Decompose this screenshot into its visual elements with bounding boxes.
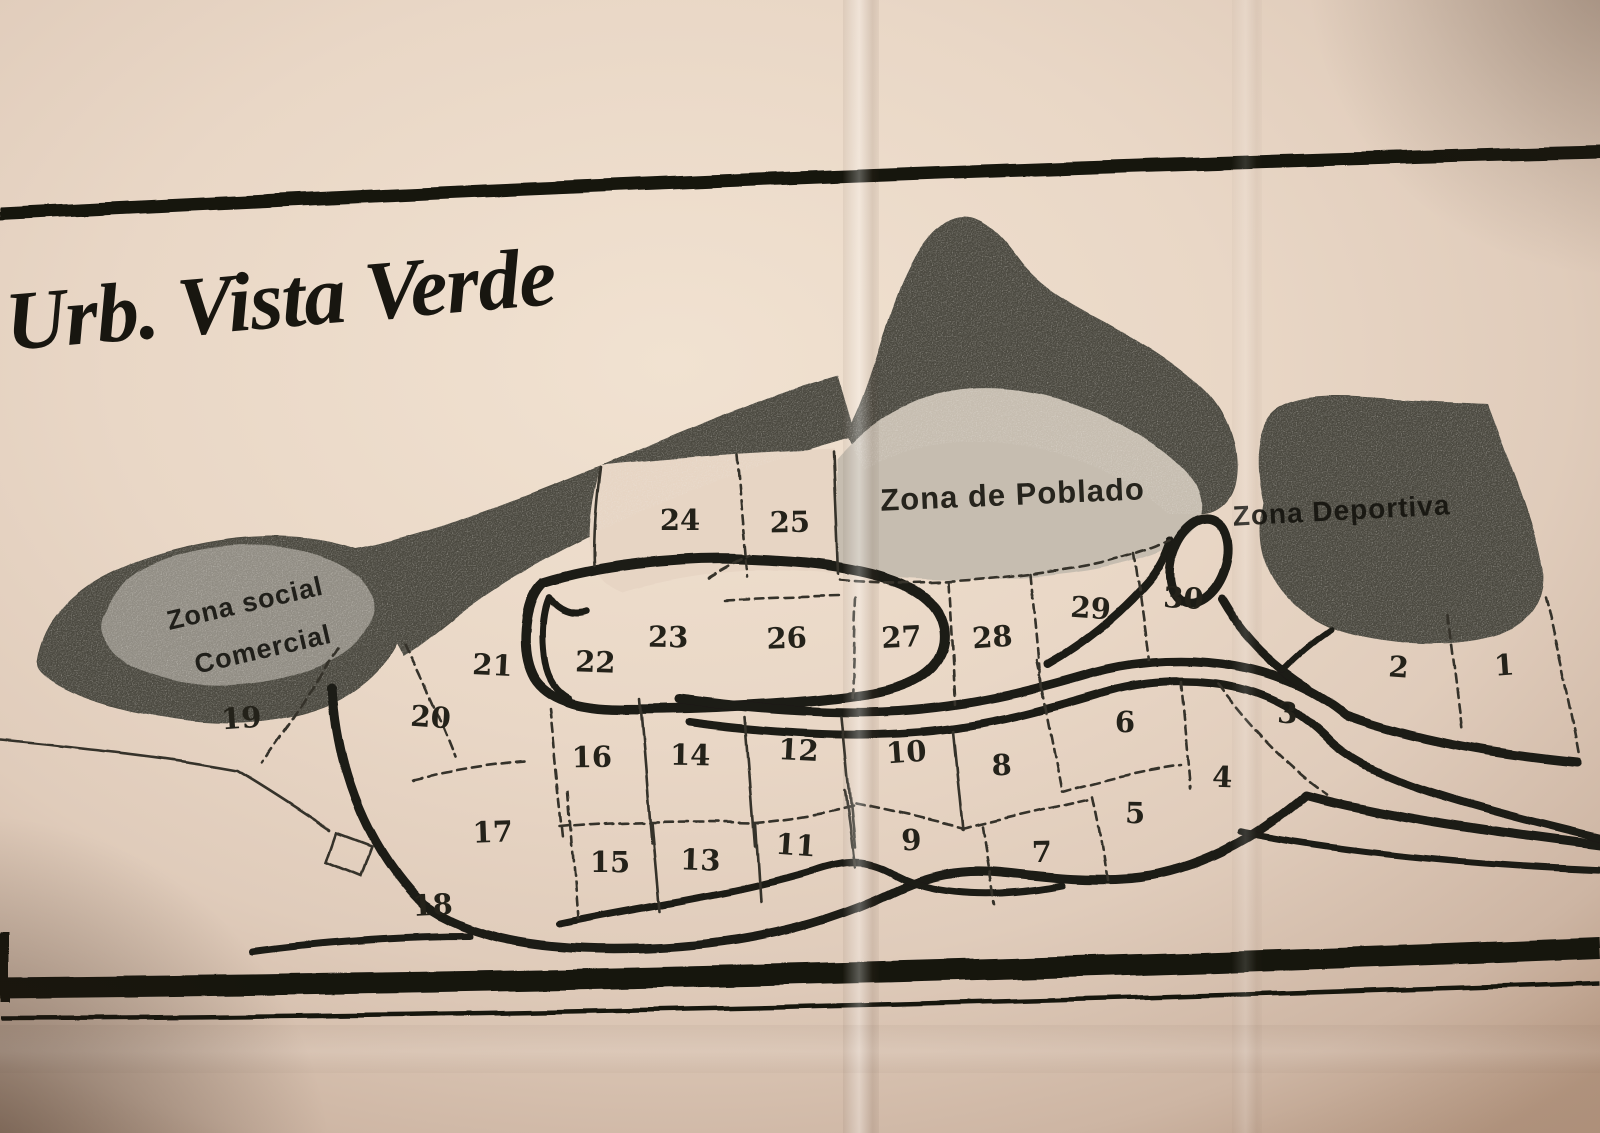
boundary-7-north bbox=[962, 799, 1092, 829]
lot-number-23: 23 bbox=[648, 620, 689, 655]
lot-number-2: 2 bbox=[1387, 649, 1410, 684]
lot-number-4: 4 bbox=[1212, 760, 1233, 795]
lot-number-6: 6 bbox=[1115, 705, 1135, 739]
lot-number-29: 29 bbox=[1069, 590, 1112, 627]
road-southwest-edge bbox=[252, 936, 468, 951]
map-canvas: Urb. Vista Verde 12345678910111213141516… bbox=[0, 0, 1600, 1133]
photographed-map: Urb. Vista Verde 12345678910111213141516… bbox=[0, 0, 1600, 1133]
lot-number-25: 25 bbox=[769, 505, 810, 540]
boundary-6-5 bbox=[1062, 766, 1181, 792]
entrance-box bbox=[327, 833, 372, 876]
lot-number-24: 24 bbox=[660, 503, 700, 537]
bottom-rule-bar bbox=[0, 948, 1600, 988]
boundary-15-west bbox=[568, 792, 578, 919]
boundary-26-27 bbox=[852, 598, 856, 700]
boundary-15-13 bbox=[652, 822, 660, 911]
boundary-14-12 bbox=[745, 717, 755, 845]
lot-number-17: 17 bbox=[472, 814, 514, 849]
boundary-10-8 bbox=[953, 731, 963, 830]
lot-number-21: 21 bbox=[471, 647, 513, 683]
lot-number-22: 22 bbox=[575, 644, 617, 679]
road-fork-branch bbox=[1283, 629, 1331, 670]
lot-number-7: 7 bbox=[1031, 835, 1052, 869]
lot-number-28: 28 bbox=[971, 619, 1014, 656]
boundary-28-29 bbox=[1031, 574, 1042, 690]
lot-number-13: 13 bbox=[680, 842, 722, 877]
lot-number-20: 20 bbox=[409, 699, 452, 736]
lot-number-26: 26 bbox=[766, 620, 808, 655]
boundary-6-4 bbox=[1181, 682, 1191, 789]
boundary-26-north bbox=[726, 596, 840, 600]
map-title: Urb. Vista Verde bbox=[2, 230, 559, 369]
boundary-29-30 bbox=[1134, 552, 1149, 660]
lot-number-1: 1 bbox=[1493, 647, 1516, 682]
lot-number-14: 14 bbox=[670, 738, 711, 773]
lot-number-16: 16 bbox=[571, 740, 612, 775]
lot-number-5: 5 bbox=[1125, 796, 1146, 830]
boundary-13-11 bbox=[755, 822, 760, 902]
lot-number-11: 11 bbox=[774, 827, 817, 864]
road-loop-curl bbox=[549, 598, 586, 614]
boundary-16-west bbox=[550, 709, 564, 843]
lot-number-15: 15 bbox=[590, 845, 630, 879]
boundary-mid-row-south bbox=[560, 805, 857, 827]
boundary-19-south bbox=[0, 740, 330, 830]
lot-number-3: 3 bbox=[1277, 696, 1299, 731]
lot-number-10: 10 bbox=[885, 734, 928, 771]
lot-number-19: 19 bbox=[220, 700, 263, 737]
lot-number-12: 12 bbox=[777, 732, 819, 768]
lot-number-9: 9 bbox=[901, 823, 923, 858]
boundary-1-east bbox=[1545, 597, 1580, 758]
boundary-7-5 bbox=[1093, 797, 1108, 884]
lot-number-27: 27 bbox=[880, 619, 922, 655]
lot-number-8: 8 bbox=[991, 748, 1012, 783]
lot-number-30: 30 bbox=[1162, 580, 1204, 616]
boundary-20-17 bbox=[413, 762, 526, 780]
lot-number-18: 18 bbox=[411, 887, 453, 923]
top-rule-line bbox=[0, 152, 1600, 214]
